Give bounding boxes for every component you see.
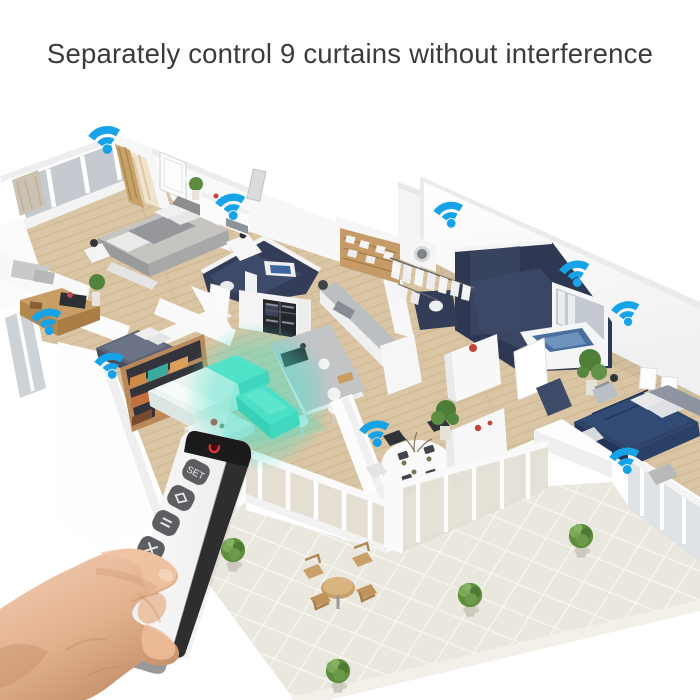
svg-text:Separately control 9 curtains: Separately control 9 curtains without in… [47, 38, 653, 69]
